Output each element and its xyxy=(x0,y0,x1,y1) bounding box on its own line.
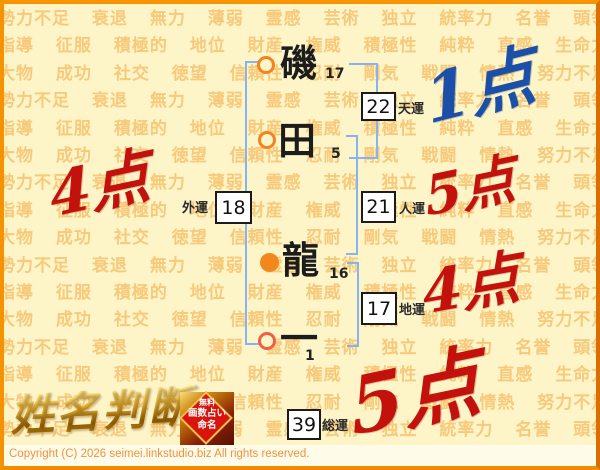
char4-marker-ring xyxy=(258,332,276,350)
jinun-value-box: 21 xyxy=(361,191,396,223)
free-kamei-badge[interactable]: 無料 画数占い 命名 xyxy=(180,392,234,446)
badge-text: 無料 画数占い 命名 xyxy=(180,398,234,432)
chiun-value-box: 17 xyxy=(361,292,397,325)
jinun-score-calligraphy: 5点 xyxy=(422,150,517,223)
seimei-handan-result-page: 勢力不足 衰退 無力 薄弱 霊感 芸術 独立 統率力 名誉 頭領 指導 征服 積… xyxy=(0,0,600,470)
char4-stroke-count: 1 xyxy=(305,348,315,364)
char2-marker-ring xyxy=(258,131,276,149)
char3-marker-disc xyxy=(260,253,279,272)
jinun-bracket xyxy=(346,135,358,255)
char1-stroke-count: 17 xyxy=(325,66,344,82)
gaiun-value-box: 18 xyxy=(215,191,252,224)
char1-marker-ring xyxy=(257,56,275,74)
name-char-3: 龍 xyxy=(282,242,319,279)
tenun-value-box: 22 xyxy=(361,92,396,121)
name-char-1: 磯 xyxy=(280,45,317,82)
jinun-label: 人運 xyxy=(399,198,425,217)
char3-stroke-count: 16 xyxy=(329,266,348,282)
chiun-label: 地運 xyxy=(399,299,425,318)
chiun-score-calligraphy: 4点 xyxy=(421,247,522,322)
badge-line1: 無料 xyxy=(180,398,234,408)
badge-line3: 命名 xyxy=(180,420,234,432)
soun-label: 総運 xyxy=(322,415,348,434)
badge-line2: 画数占い xyxy=(180,408,234,420)
char2-stroke-count: 5 xyxy=(331,146,341,162)
chiun-bracket xyxy=(347,262,359,347)
copyright-text: Copyright (C) 2026 seimei.linkstudio.biz… xyxy=(9,448,309,460)
gaiun-label: 外運 xyxy=(182,197,208,216)
soun-value-box: 39 xyxy=(287,409,321,440)
tenun-label: 天運 xyxy=(398,98,424,117)
name-char-2: 田 xyxy=(278,122,316,160)
site-logo[interactable]: 姓名判断 xyxy=(9,385,195,439)
copyright-bar: Copyright (C) 2026 seimei.linkstudio.biz… xyxy=(4,445,596,466)
